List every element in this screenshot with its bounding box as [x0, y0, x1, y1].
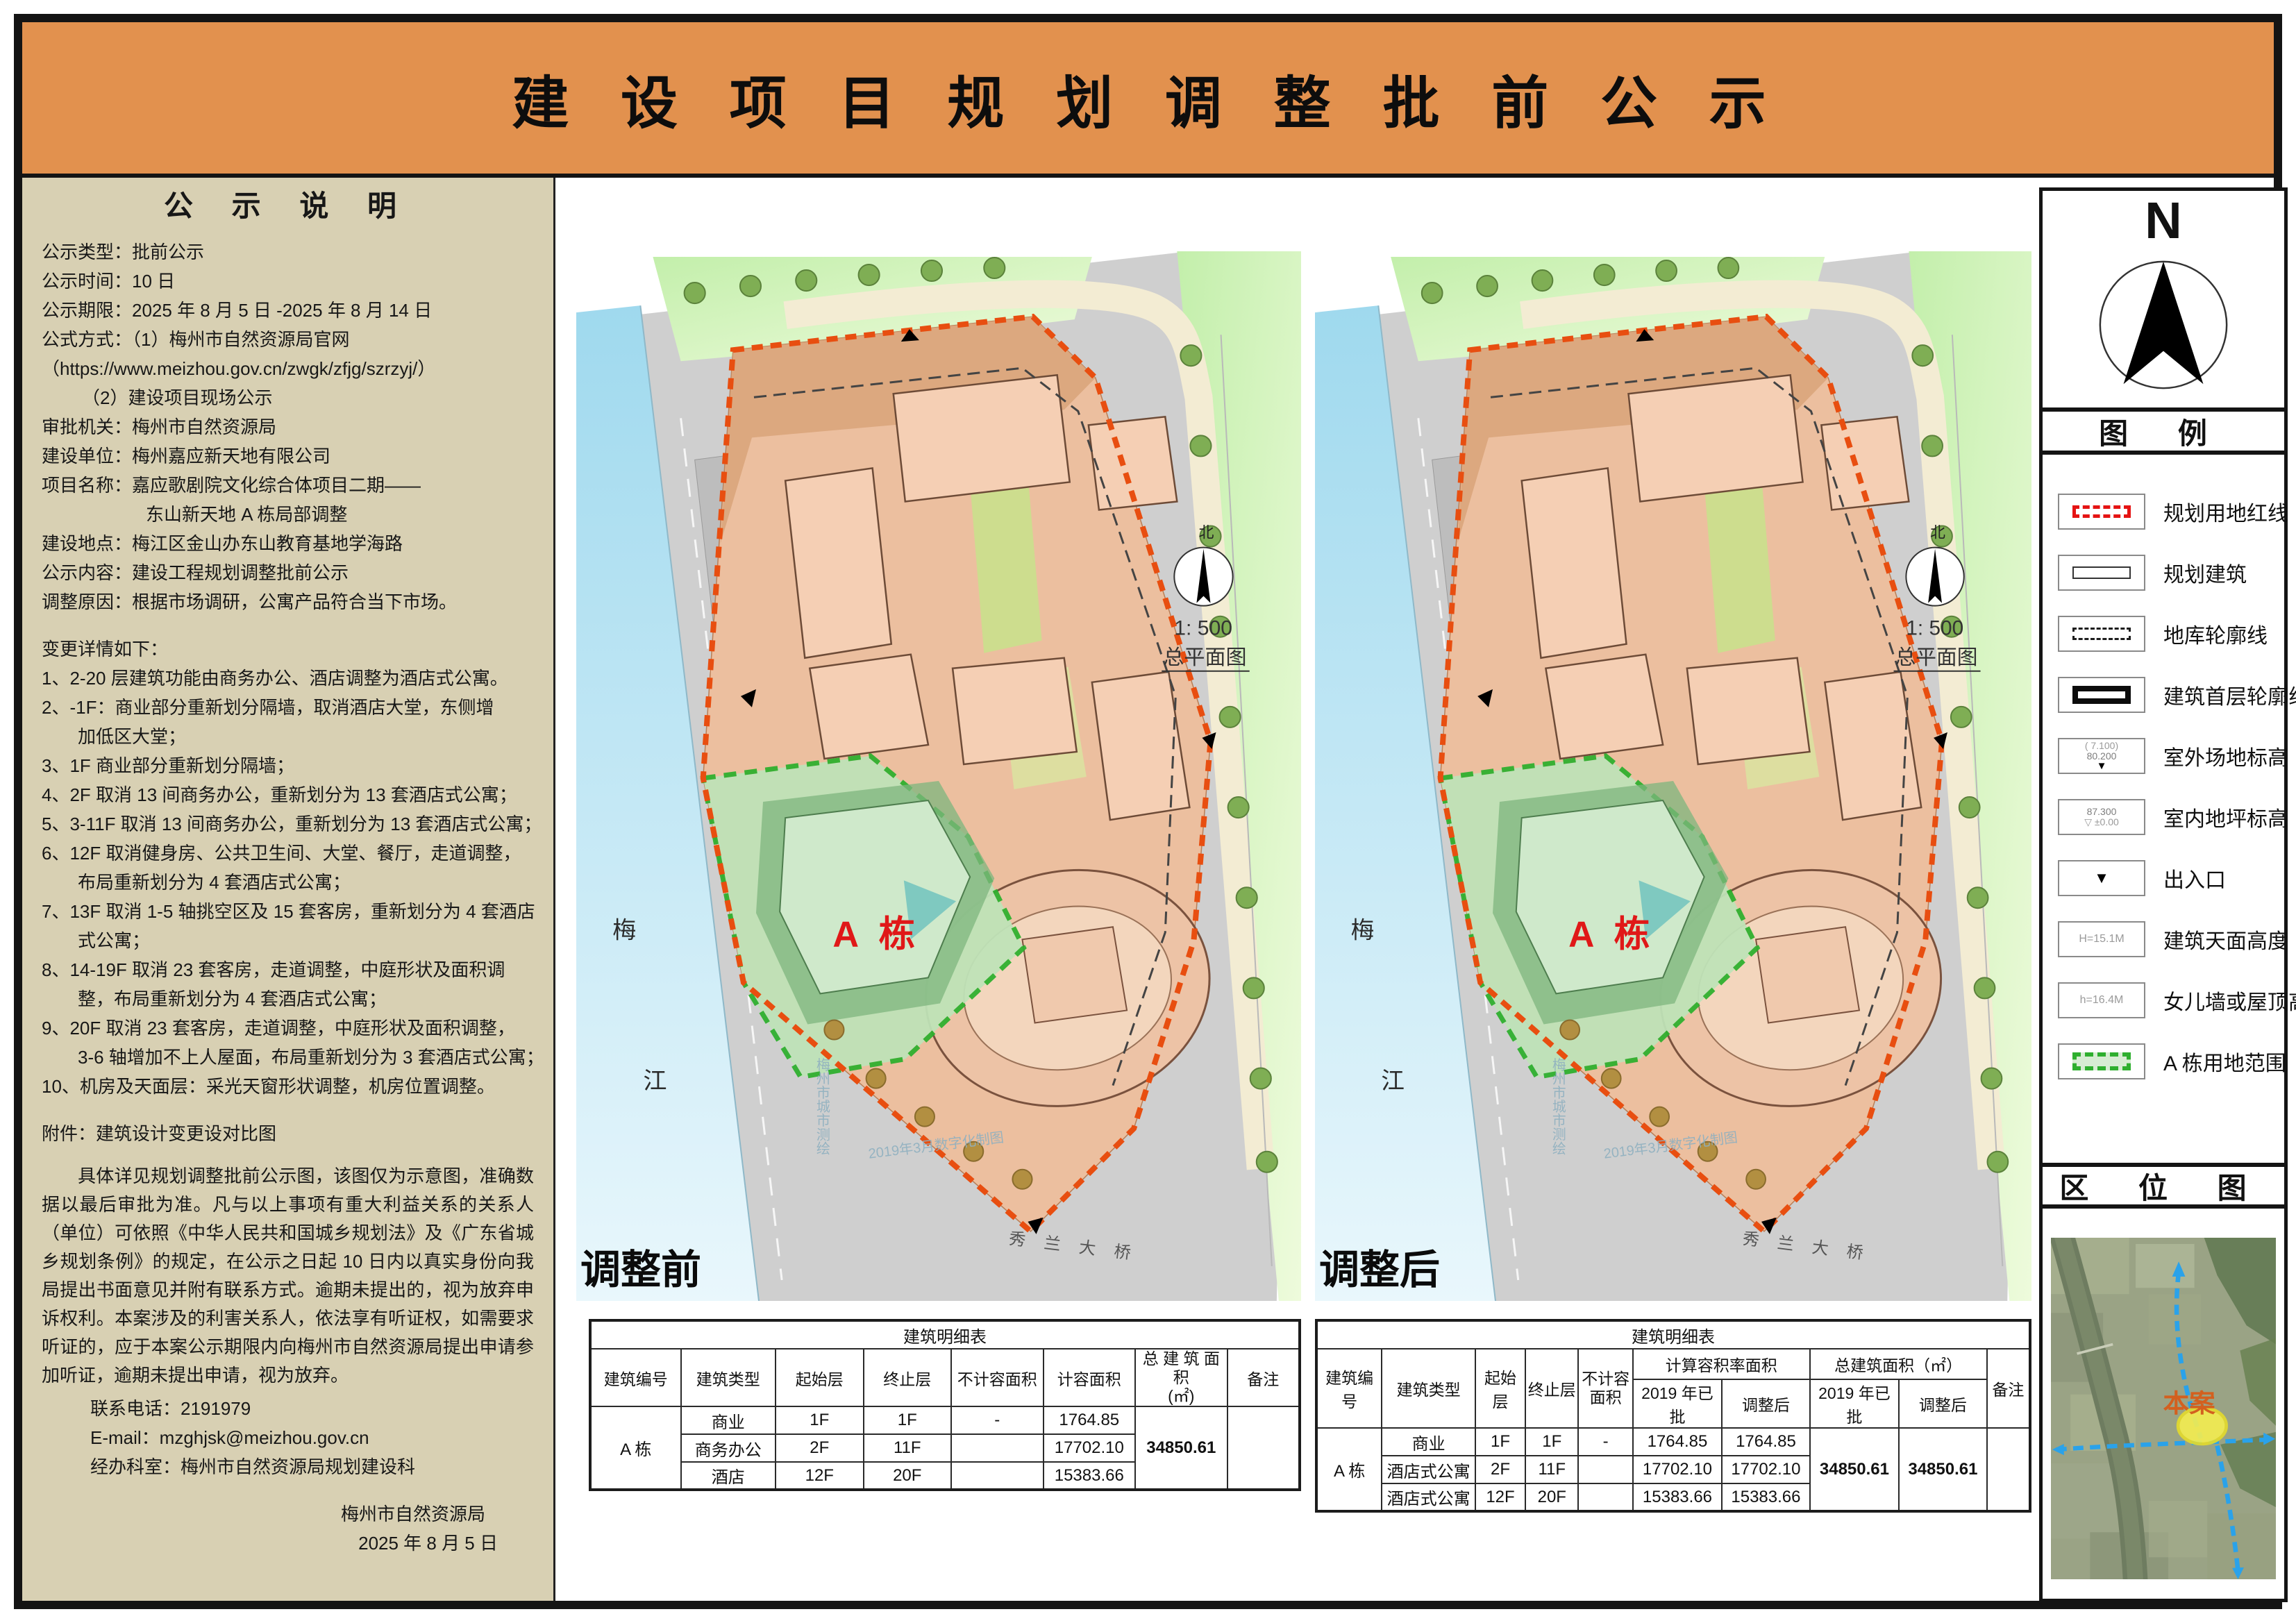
change-line: 3-6 轴增加不上人屋面，布局重新划分为 3 套酒店式公寓； — [42, 1043, 534, 1072]
change-line: 整，布局重新划分为 4 套酒店式公寓； — [42, 984, 534, 1014]
info-line: 建设单位：梅州嘉应新天地有限公司 — [42, 442, 534, 471]
col-subheader: 2019 年已批 — [1810, 1379, 1899, 1428]
col-header: 建筑编号 — [1316, 1349, 1382, 1428]
legend-item-indoor-elevation: 87.300 ▽ ±0.00 室内地坪标高 — [2058, 787, 2284, 848]
river-name-bottom: 江 — [643, 1068, 667, 1095]
river-name-bottom: 江 — [1381, 1068, 1405, 1094]
info-line: 公示类型：批前公示 — [42, 237, 534, 267]
cell: 15383.66 — [1044, 1462, 1136, 1490]
col-header: 起始层 — [1475, 1349, 1525, 1428]
compass-icon — [2043, 251, 2284, 402]
site-plan-svg: 梅 江 梅州市城市测绘 2019年3月数字化制图 秀 兰 大 桥 A 栋 北 1… — [576, 251, 1301, 1301]
info-line: 公式方式：（1）梅州市自然资源局官网 — [42, 325, 534, 354]
cell: - — [1578, 1428, 1632, 1456]
black-dashed-icon — [2058, 616, 2145, 652]
cell — [1578, 1456, 1632, 1483]
legend-box: 规划用地红线 规划建筑 地库轮廓线 建筑首层轮廓线 ( 7.100) 80.20… — [2039, 451, 2288, 1166]
signature-date: 2025 年 8 月 5 日 — [42, 1529, 534, 1558]
site-label: 本案 — [2163, 1390, 2215, 1418]
building-detail-table: 建筑明细表 建筑编号 建筑类型 起始层 终止层 不计容面积 计容面积 总 建 筑… — [589, 1319, 1301, 1491]
change-line: 10、机房及天面层：采光天窗形状调整，机房位置调整。 — [42, 1072, 534, 1101]
change-line: 8、14-19F 取消 23 套客房，走道调整，中庭形状及面积调 — [42, 955, 534, 984]
cell: 11F — [864, 1434, 951, 1462]
change-line: 3、1F 商业部分重新划分隔墙； — [42, 751, 534, 780]
col-subheader: 2019 年已批 — [1633, 1379, 1722, 1428]
cell: 1F — [1525, 1428, 1578, 1456]
green-dashed-icon — [2058, 1043, 2145, 1079]
legend-title-box: 图 例 — [2039, 408, 2288, 454]
change-line: 1、2-20 层建筑功能由商务办公、酒店调整为酒店式公寓。 — [42, 664, 534, 693]
cell: 商务办公 — [681, 1434, 776, 1462]
location-title: 区 位 图 — [2059, 1165, 2267, 1207]
location-map-svg: 本案 — [2051, 1238, 2276, 1579]
info-line: 公示时间：10 日 — [42, 267, 534, 296]
map-watermark-1: 梅州市城市测绘 — [1550, 1057, 1566, 1155]
map-watermark-1: 梅州市城市测绘 — [814, 1057, 830, 1155]
river-name-top: 梅 — [612, 917, 636, 943]
cell: 1F — [864, 1406, 951, 1434]
outdoor-elevation-icon: ( 7.100) 80.200 ▼ — [2058, 738, 2145, 774]
cell: 酒店式公寓 — [1382, 1483, 1475, 1511]
indoor-elevation-icon: 87.300 ▽ ±0.00 — [2058, 799, 2145, 835]
river-name-top: 梅 — [1351, 917, 1375, 943]
cell: 酒店式公寓 — [1382, 1456, 1475, 1483]
contact-email: E-mail：mzghjsk@meizhou.gov.cn — [42, 1423, 534, 1452]
legend-item-entrance: ▼ 出入口 — [2058, 848, 2284, 909]
info-line: 建设地点：梅江区金山办东山教育基地学海路 — [42, 529, 534, 558]
change-line: 2、-1F：商业部分重新划分隔墙，取消酒店大堂，东侧增 — [42, 693, 534, 722]
attachment-line: 附件：建筑设计变更设对比图 — [42, 1119, 534, 1148]
cell-total-after: 34850.61 — [1899, 1428, 1986, 1511]
legend-item-roof-height: H=15.1M 建筑天面高度 — [2058, 909, 2284, 970]
parapet-height-icon: h=16.4M — [2058, 982, 2145, 1018]
cell: 17702.10 — [1722, 1456, 1809, 1483]
building-detail-table: 建筑明细表 建筑编号 建筑类型 起始层 终止层 不计容 面积 计算容积率面积 总… — [1315, 1319, 2031, 1513]
col-header: 起始层 — [776, 1349, 863, 1406]
col-header: 不计容面积 — [951, 1349, 1044, 1406]
rect-outline-icon — [2058, 555, 2145, 591]
north-char: 北 — [1930, 523, 1945, 541]
cell: 酒店 — [681, 1462, 776, 1490]
building-table-after: 建筑明细表 建筑编号 建筑类型 起始层 终止层 不计容 面积 计算容积率面积 总… — [1315, 1319, 2031, 1484]
cell: 12F — [776, 1462, 863, 1490]
legend-item-a-block-zone: A 栋用地范围 — [2058, 1031, 2284, 1092]
cell: 15383.66 — [1633, 1483, 1722, 1511]
col-subheader: 调整后 — [1722, 1379, 1809, 1428]
col-header-group: 总建筑面积（㎡） — [1810, 1349, 1987, 1379]
entrance-icon: ▼ — [2058, 860, 2145, 896]
table-title: 建筑明细表 — [1316, 1320, 2030, 1349]
roof-height-icon: H=15.1M — [2058, 921, 2145, 957]
cell-building-id: A 栋 — [1316, 1428, 1382, 1511]
header-band: 建 设 项 目 规 划 调 整 批 前 公 示 — [22, 22, 2274, 178]
col-header: 备注 — [1227, 1349, 1300, 1406]
north-char: 北 — [1198, 524, 1214, 541]
legend-item-parapet-height: h=16.4M 女儿墙或屋顶高度 — [2058, 970, 2284, 1031]
contact-office: 经办科室：梅州市自然资源局规划建设科 — [42, 1452, 534, 1481]
cell: 1F — [776, 1406, 863, 1434]
compass-box: N — [2039, 187, 2288, 411]
col-header: 终止层 — [1525, 1349, 1578, 1428]
site-plan-canvas: 梅 江 梅州市城市测绘 2019年3月数字化制图 秀 兰 大 桥 A 栋 北 1… — [1315, 251, 2031, 1301]
cell-remark — [1987, 1428, 2030, 1511]
info-line: 公示内容：建设工程规划调整批前公示 — [42, 558, 534, 587]
col-header-group: 计算容积率面积 — [1633, 1349, 1810, 1379]
announcement-page: 建 设 项 目 规 划 调 整 批 前 公 示 公 示 说 明 公示类型：批前公… — [0, 0, 2296, 1623]
info-line: 调整原因：根据市场调研，公寓产品符合当下市场。 — [42, 587, 534, 616]
legal-paragraph: 具体详见规划调整批前公示图，该图仅为示意图，准确数据以最后审批为准。凡与以上事项… — [42, 1162, 534, 1390]
map-scale: 1: 500 — [1906, 617, 1963, 640]
info-line: 审批机关：梅州市自然资源局 — [42, 412, 534, 442]
change-line: 加低区大堂； — [42, 722, 534, 751]
legend-item-basement-outline: 地库轮廓线 — [2058, 603, 2284, 664]
legend-item-outdoor-elevation: ( 7.100) 80.200 ▼ 室外场地标高 — [2058, 725, 2284, 787]
cell: 1764.85 — [1633, 1428, 1722, 1456]
opera-core-building — [1756, 927, 1859, 1023]
legend-title: 图 例 — [2099, 410, 2228, 453]
cell: 12F — [1475, 1483, 1525, 1511]
page-frame: 建 设 项 目 规 划 调 整 批 前 公 示 公 示 说 明 公示类型：批前公… — [14, 14, 2282, 1609]
legend-item-red-boundary: 规划用地红线 — [2058, 481, 2284, 542]
cell: 17702.10 — [1633, 1456, 1722, 1483]
cell: 17702.10 — [1044, 1434, 1136, 1462]
cell: 1F — [1475, 1428, 1525, 1456]
north-letter: N — [2043, 191, 2284, 251]
location-map: 本案 — [2051, 1238, 2276, 1579]
location-title-box: 区 位 图 — [2039, 1163, 2288, 1208]
col-header: 建筑编号 — [590, 1349, 681, 1406]
site-plan-svg: 梅 江 梅州市城市测绘 2019年3月数字化制图 秀 兰 大 桥 A 栋 北 1… — [1315, 251, 2031, 1301]
cell-total-area: 34850.61 — [1135, 1406, 1227, 1490]
change-line: 9、20F 取消 23 套客房，走道调整，中庭形状及面积调整， — [42, 1014, 534, 1043]
change-line: 布局重新划分为 4 套酒店式公寓； — [42, 868, 534, 897]
info-line: 东山新天地 A 栋局部调整 — [42, 500, 534, 529]
cell: 1764.85 — [1044, 1406, 1136, 1434]
cell: 11F — [1525, 1456, 1578, 1483]
cell — [1578, 1483, 1632, 1511]
col-header: 不计容 面积 — [1578, 1349, 1632, 1428]
col-header: 终止层 — [864, 1349, 951, 1406]
contact-phone: 联系电话：2191979 — [42, 1394, 534, 1423]
change-line: 6、12F 取消健身房、公共卫生间、大堂、餐厅，走道调整， — [42, 839, 534, 868]
col-header: 总 建 筑 面 积 (㎡) — [1135, 1349, 1227, 1406]
col-header: 建筑类型 — [1382, 1349, 1475, 1428]
col-header: 备注 — [1987, 1349, 2030, 1428]
change-line: 式公寓； — [42, 926, 534, 955]
col-subheader: 调整后 — [1899, 1379, 1986, 1428]
site-plan-after: 梅 江 梅州市城市测绘 2019年3月数字化制图 秀 兰 大 桥 A 栋 北 1… — [1315, 251, 2031, 1301]
info-line: 项目名称：嘉应歌剧院文化综合体项目二期—— — [42, 471, 534, 500]
cell: 商业 — [681, 1406, 776, 1434]
cell — [951, 1462, 1044, 1490]
col-header: 计容面积 — [1044, 1349, 1136, 1406]
info-line official-url: （https://www.meizhou.gov.cn/zwgk/zfjg/sz… — [42, 354, 534, 383]
sidebar-title: 公 示 说 明 — [42, 192, 534, 221]
cell: 20F — [864, 1462, 951, 1490]
cell: 商业 — [1382, 1428, 1475, 1456]
col-header: 建筑类型 — [681, 1349, 776, 1406]
site-plan-canvas: 梅 江 梅州市城市测绘 2019年3月数字化制图 秀 兰 大 桥 A 栋 北 1… — [576, 251, 1301, 1301]
cell-total-2019: 34850.61 — [1810, 1428, 1899, 1511]
map-plan-label: 总平面图 — [1895, 646, 1978, 669]
map-scale: 1: 500 — [1174, 617, 1232, 640]
thick-rect-icon — [2058, 677, 2145, 713]
change-line: 5、3-11F 取消 13 间商务办公，重新划分为 13 套酒店式公寓； — [42, 809, 534, 839]
location-map-box: 本案 — [2039, 1205, 2288, 1602]
info-line: （2）建设项目现场公示 — [42, 383, 534, 412]
a-block-label: A 栋 — [832, 914, 921, 955]
cell: 15383.66 — [1722, 1483, 1809, 1511]
legend-item-planned-building: 规划建筑 — [2058, 542, 2284, 603]
table-title: 建筑明细表 — [590, 1320, 1300, 1349]
page-title: 建 设 项 目 规 划 调 整 批 前 公 示 — [512, 57, 1784, 140]
site-plan-before: 梅 江 梅州市城市测绘 2019年3月数字化制图 秀 兰 大 桥 A 栋 北 1… — [576, 251, 1301, 1301]
cell: 20F — [1525, 1483, 1578, 1511]
building-table-before: 建筑明细表 建筑编号 建筑类型 起始层 终止层 不计容面积 计容面积 总 建 筑… — [589, 1319, 1301, 1484]
notice-sidebar: 公 示 说 明 公示类型：批前公示 公示时间：10 日 公示期限：2025 年 … — [22, 178, 555, 1601]
opera-core-building — [1022, 927, 1127, 1023]
cell: 1764.85 — [1722, 1428, 1809, 1456]
changes-title: 变更详情如下： — [42, 634, 534, 664]
signature-org: 梅州市自然资源局 — [42, 1499, 534, 1529]
after-label: 调整后 — [1319, 1237, 1440, 1295]
cell — [951, 1434, 1044, 1462]
legend-item-groundfloor-outline: 建筑首层轮廓线 — [2058, 664, 2284, 725]
cell-building-id: A 栋 — [590, 1406, 681, 1490]
red-dashed-icon — [2058, 494, 2145, 530]
a-block-label: A 栋 — [1568, 914, 1655, 954]
cell: 2F — [1475, 1456, 1525, 1483]
change-line: 4、2F 取消 13 间商务办公，重新划分为 13 套酒店式公寓； — [42, 780, 534, 809]
cell: - — [951, 1406, 1044, 1434]
info-line: 公示期限：2025 年 8 月 5 日 -2025 年 8 月 14 日 — [42, 296, 534, 325]
before-label: 调整前 — [580, 1237, 701, 1295]
change-line: 7、13F 取消 1-5 轴挑空区及 15 套客房，重新划分为 4 套酒店 — [42, 897, 534, 926]
map-plan-label: 总平面图 — [1163, 646, 1246, 669]
cell-remark — [1227, 1406, 1300, 1490]
cell: 2F — [776, 1434, 863, 1462]
